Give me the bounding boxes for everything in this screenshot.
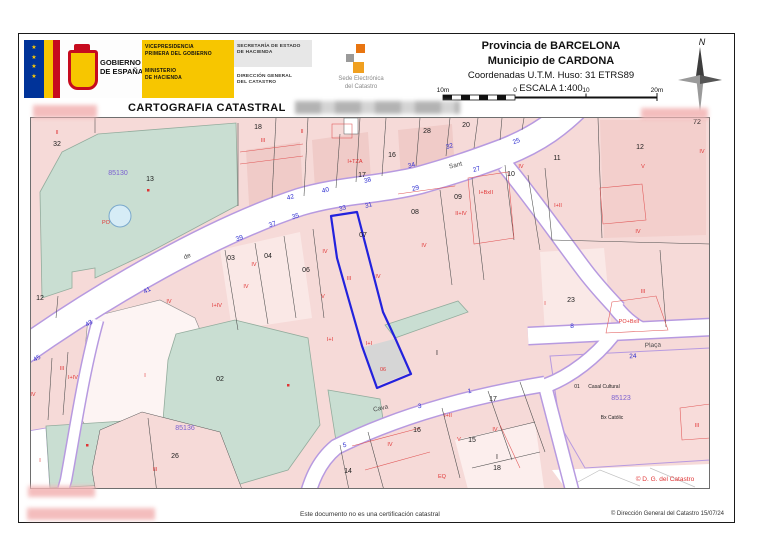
map-label: 06 xyxy=(380,367,386,373)
gobierno-line2: DE ESPAÑA xyxy=(100,67,144,76)
map-label: 09 xyxy=(454,194,462,201)
map-label: 14 xyxy=(344,468,352,475)
municipality-title: Municipio de CARDONA xyxy=(420,54,682,69)
map-label: 12 xyxy=(36,295,44,302)
map-label: 85123 xyxy=(611,395,631,402)
direccion-block: DIRECCIÓN GENERAL DEL CATASTRO xyxy=(234,70,312,98)
map-label: II+IV xyxy=(455,211,467,217)
map-label: IV xyxy=(251,262,257,268)
map-label: EQ xyxy=(438,474,447,480)
map-label: 26 xyxy=(171,453,179,460)
map-label: 28 xyxy=(423,128,431,135)
map-label: III xyxy=(347,276,352,282)
map-label: IV xyxy=(166,299,172,305)
map-label: © D. G. del Catastro xyxy=(636,475,695,483)
ministry-line: DE HACIENDA xyxy=(145,75,231,82)
scale-bar: 10m 0 10 20m xyxy=(436,84,672,106)
map-label: 11 xyxy=(553,155,560,162)
map-label: 18 xyxy=(254,124,262,131)
scale-bar-label: 0 xyxy=(513,87,517,94)
map-label: 01 xyxy=(574,384,580,390)
north-compass: N xyxy=(668,34,732,114)
map-label: IV xyxy=(492,427,498,433)
map-label: V xyxy=(321,294,325,300)
map-label: II xyxy=(55,130,59,136)
map-label: IV xyxy=(635,229,641,235)
map-label: I+IV xyxy=(68,375,78,381)
map-label: I xyxy=(436,350,438,357)
map-label: 12 xyxy=(636,144,644,151)
map-label: V xyxy=(641,164,645,170)
map-label: IV xyxy=(322,249,328,255)
map-label: III xyxy=(261,138,266,144)
map-label: 02 xyxy=(216,376,224,383)
map-label: 85136 xyxy=(175,425,195,432)
map-label: I+II xyxy=(444,413,452,419)
map-label: IV xyxy=(387,442,393,448)
map-label: PO+BxII xyxy=(619,319,640,325)
map-label: II xyxy=(300,129,304,135)
map-label: Plaça xyxy=(645,342,662,350)
map-label: PO xyxy=(102,220,111,226)
map-label: 24 xyxy=(629,353,637,360)
map-label: 10 xyxy=(507,171,515,178)
map-label: I+IV xyxy=(212,303,222,309)
gobierno-line1: GOBIERNO xyxy=(100,58,144,67)
coordinates-text: Coordenadas U.T.M. Huso: 31 ETRS89 xyxy=(420,69,682,82)
map-label: 23 xyxy=(567,297,575,304)
north-label: N xyxy=(699,37,706,47)
map-label: 8 xyxy=(570,323,574,330)
scale-bar-label: 10m xyxy=(437,87,450,94)
redacted-label xyxy=(28,486,95,497)
province-title: Provincia de BARCELONA xyxy=(420,39,682,54)
sede-square-icon xyxy=(353,62,364,73)
scale-bar-checker xyxy=(443,95,515,100)
ministry-block: VICEPRESIDENCIA PRIMERA DEL GOBIERNO MIN… xyxy=(142,40,234,98)
map-label: IV xyxy=(375,274,381,280)
cadastral-document-page: ★★★★ GOBIERNO DE ESPAÑA VICEPRESIDENCIA … xyxy=(0,0,766,556)
cadastral-map: 3213181617282012030406070809101112722302… xyxy=(30,117,710,489)
map-label: I+II xyxy=(554,203,562,209)
eu-flag-stars-icon: ★★★★ xyxy=(24,40,44,98)
direccion-line: DEL CATASTRO xyxy=(237,80,309,86)
map-label: I+I xyxy=(327,337,334,343)
map-section-title: CARTOGRAFIA CATASTRAL xyxy=(128,102,286,114)
redacted-label xyxy=(641,108,708,119)
coat-of-arms-area: GOBIERNO DE ESPAÑA xyxy=(60,40,142,98)
map-label: 07 xyxy=(359,232,367,239)
map-label: I+TZA xyxy=(347,159,362,165)
map-label: IV xyxy=(30,392,36,398)
redacted-label xyxy=(27,508,155,520)
scale-bar-label: 20m xyxy=(651,87,664,94)
map-label: III xyxy=(60,366,65,372)
map-label: I+I xyxy=(366,341,373,347)
map-label: 06 xyxy=(302,267,310,274)
map-label: III xyxy=(695,423,700,429)
pond xyxy=(109,205,131,227)
map-label: 03 xyxy=(227,255,235,262)
map-label: IV xyxy=(243,284,249,290)
map-label: 32 xyxy=(53,141,61,148)
gobierno-text: GOBIERNO DE ESPAÑA xyxy=(100,58,144,77)
map-label: Casal Cultural xyxy=(588,384,619,390)
redacted-label xyxy=(33,105,97,118)
shield-icon xyxy=(68,50,98,90)
secretaria-line: DE HACIENDA xyxy=(237,50,309,56)
map-label: 16 xyxy=(413,427,421,434)
spain-flag-yellow-stripe xyxy=(44,40,53,98)
map-label: 16 xyxy=(388,152,396,159)
map-label: 04 xyxy=(264,253,272,260)
scale-bar-line xyxy=(515,93,657,101)
map-label: IV xyxy=(518,164,524,170)
map-label: Bx Católic xyxy=(601,415,624,421)
footer-disclaimer: Este documento no es una certificación c… xyxy=(300,511,440,518)
map-label: IV xyxy=(421,243,427,249)
map-label: 17 xyxy=(489,396,497,403)
map-label: I+BxII xyxy=(479,190,494,196)
sede-square-icon xyxy=(356,44,365,53)
map-label: 15 xyxy=(468,437,476,444)
map-label: 08 xyxy=(411,209,419,216)
map-label: 85130 xyxy=(108,170,128,177)
sede-text: Sede Electrónica del Catastro xyxy=(322,76,400,91)
map-label: III xyxy=(641,289,646,295)
sede-square-icon xyxy=(346,54,354,62)
sede-electronica-logo: Sede Electrónica del Catastro xyxy=(322,42,400,94)
map-label: 72 xyxy=(693,119,701,126)
map-label: III xyxy=(153,467,158,473)
secretaria-block: SECRETARÍA DE ESTADO DE HACIENDA xyxy=(234,40,312,67)
map-label: IV xyxy=(699,149,705,155)
redacted-reference-text xyxy=(295,101,460,114)
footer-copyright: © Dirección General del Catastro 15/07/2… xyxy=(572,511,724,517)
map-label: 18 xyxy=(493,465,501,472)
scale-bar-label: 10 xyxy=(582,87,590,94)
map-label: V xyxy=(457,437,461,443)
spain-flag-red-stripe xyxy=(53,40,60,98)
map-label: 13 xyxy=(146,176,154,183)
map-label: 20 xyxy=(462,122,470,129)
map-label: I xyxy=(496,454,498,461)
